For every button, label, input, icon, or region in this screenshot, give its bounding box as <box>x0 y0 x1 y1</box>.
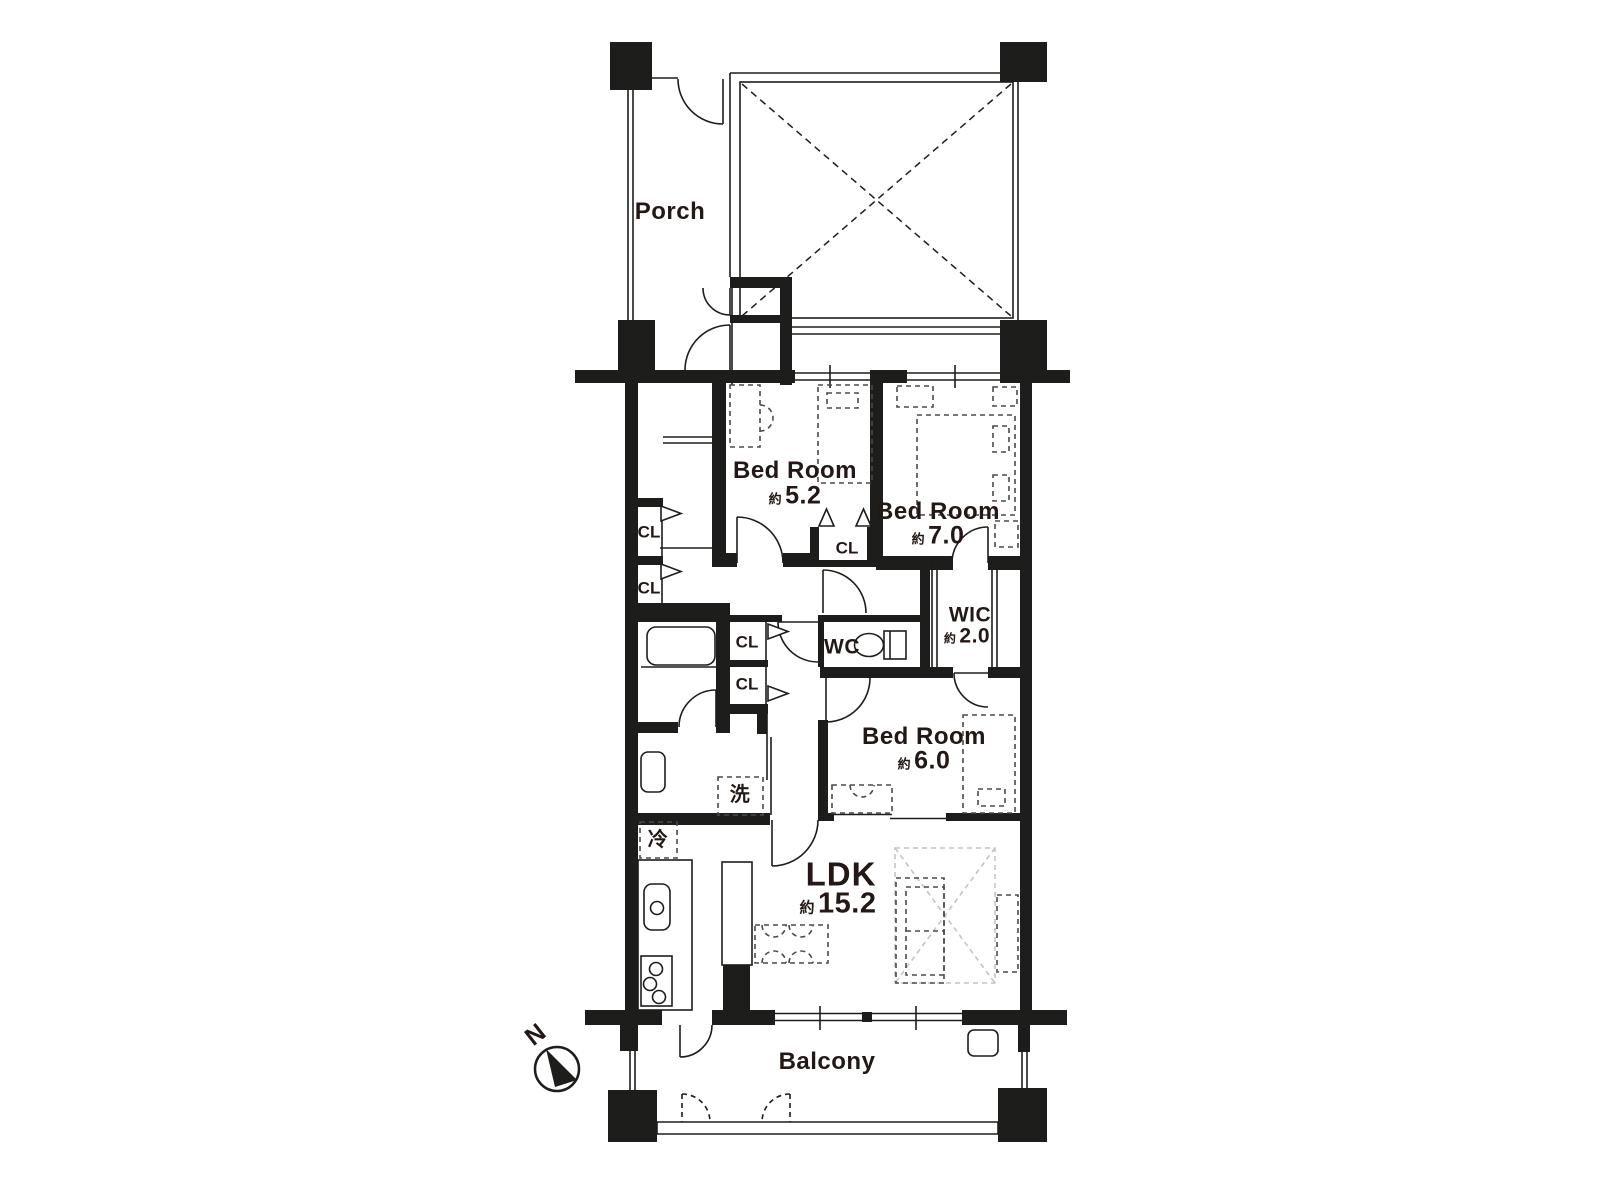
closet-label: CL <box>736 676 759 693</box>
porch-gate-door <box>678 79 723 124</box>
size-value: 5.2 <box>785 482 821 510</box>
bathroom-door <box>679 690 716 727</box>
bedroom1-size: 約5.2 <box>769 484 822 509</box>
ldk-label: LDK <box>806 858 877 891</box>
burner <box>650 963 663 976</box>
closet-label: CL <box>638 524 661 541</box>
toilet <box>855 631 907 659</box>
ldk-size: 約15.2 <box>800 890 877 919</box>
balcony-drain <box>968 1030 998 1056</box>
size-value: 15.2 <box>818 888 876 920</box>
window-balcony-sliding <box>775 1006 962 1030</box>
bedroom1-label: Bed Room <box>733 459 857 483</box>
approx-mark: 約 <box>800 900 816 917</box>
compass <box>535 1047 579 1091</box>
bedroom2-dresser <box>897 386 933 407</box>
column <box>618 320 655 372</box>
column <box>1000 42 1047 82</box>
closet-label: CL <box>836 540 859 557</box>
closet-label: CL <box>638 580 661 597</box>
bedroom3-door <box>826 678 870 722</box>
size-value: 7.0 <box>928 522 964 550</box>
porch-label: Porch <box>635 200 706 224</box>
wc-door <box>823 570 866 613</box>
laundry-label: 洗 <box>730 785 751 805</box>
bedroom3-label: Bed Room <box>862 725 986 749</box>
balcony-partition-swing <box>682 1094 790 1122</box>
washbasin <box>641 752 665 792</box>
bedroom1-door <box>737 517 783 563</box>
size-value: 6.0 <box>914 747 950 775</box>
approx-mark: 約 <box>769 492 783 507</box>
fixtures <box>638 627 998 1056</box>
floor-plan-page: Porch Bed Room 約5.2 Bed Room 約7.0 Bed Ro… <box>0 0 1600 1200</box>
bedroom1-desk <box>730 385 773 447</box>
burner <box>653 991 666 1004</box>
wc-label: WC <box>824 637 860 658</box>
sofa <box>896 878 944 983</box>
bedroom3-desk <box>832 785 892 813</box>
bedroom2-size: 約7.0 <box>912 524 965 549</box>
column <box>610 42 652 90</box>
wic-label: WIC <box>949 605 991 626</box>
floor-plan-graphic <box>0 0 1600 1200</box>
balcony-label: Balcony <box>779 1050 876 1074</box>
bedroom2-nightstand <box>993 387 1017 406</box>
balcony-door <box>680 1025 712 1057</box>
approx-mark: 約 <box>912 532 926 547</box>
wic-door <box>954 673 988 707</box>
refrigerator-label: 冷 <box>648 830 669 850</box>
dining-table-set <box>755 925 828 963</box>
tv-board <box>997 895 1018 972</box>
bedroom3-size: 約6.0 <box>898 749 951 774</box>
kitchen-island-counter <box>722 862 752 965</box>
bedroom3-sliding-partition <box>834 815 946 819</box>
bedroom2-label: Bed Room <box>876 500 1000 524</box>
approx-mark: 約 <box>944 632 957 646</box>
meter-box-door <box>703 288 730 315</box>
bathtub <box>647 627 715 665</box>
wic-size: 約2.0 <box>944 626 990 647</box>
approx-mark: 約 <box>898 757 912 772</box>
rug <box>895 848 995 983</box>
closet-label: CL <box>736 634 759 651</box>
size-value: 2.0 <box>959 625 990 648</box>
sink-drain <box>651 902 664 915</box>
column <box>998 1088 1047 1142</box>
window-north-2 <box>907 365 1000 388</box>
hall-door <box>778 622 818 662</box>
burner <box>644 978 657 991</box>
entrance-door <box>685 325 730 370</box>
column <box>608 1090 657 1142</box>
